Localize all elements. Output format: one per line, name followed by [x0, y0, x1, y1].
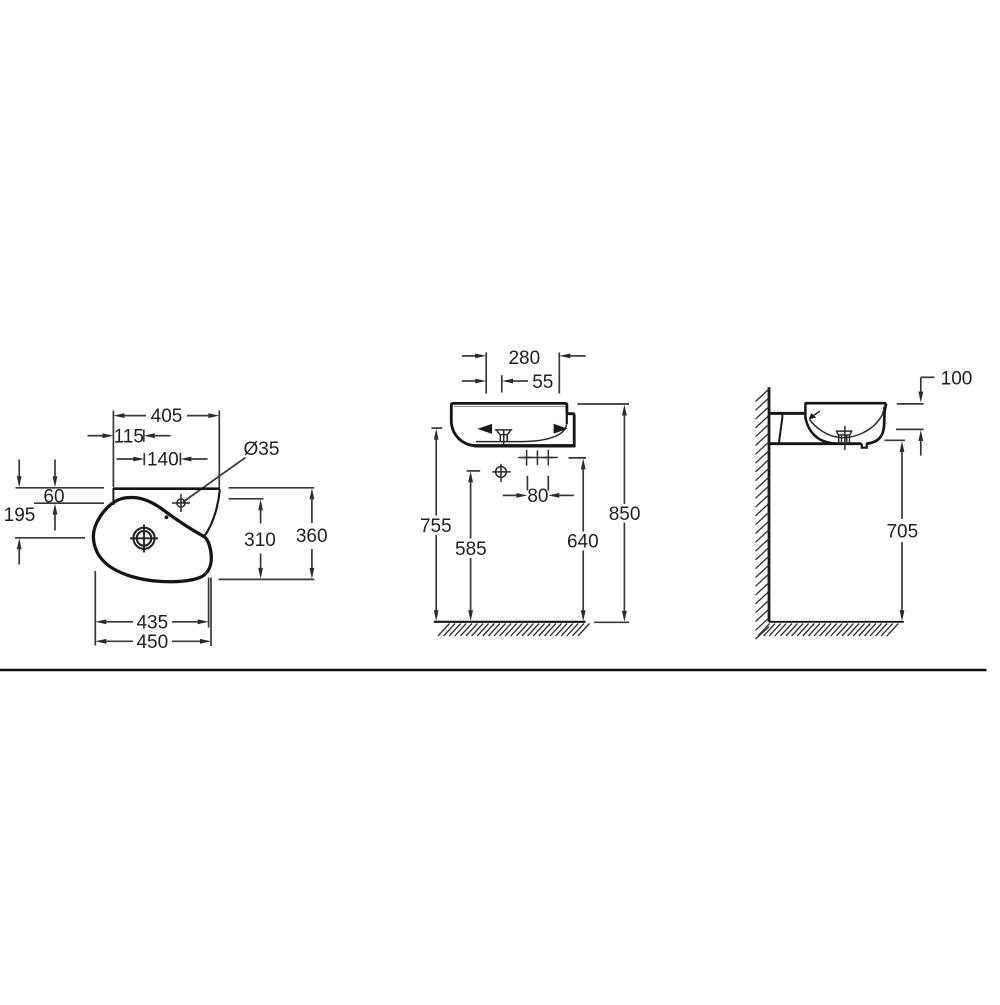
svg-text:Ø35: Ø35: [244, 439, 280, 460]
svg-text:850: 850: [609, 504, 641, 525]
svg-text:755: 755: [420, 516, 452, 537]
svg-text:360: 360: [296, 526, 328, 547]
svg-text:450: 450: [136, 632, 168, 653]
svg-text:280: 280: [508, 348, 540, 369]
svg-text:405: 405: [151, 406, 183, 427]
svg-text:640: 640: [567, 532, 599, 553]
svg-text:435: 435: [136, 612, 168, 633]
svg-text:55: 55: [532, 372, 553, 393]
svg-text:585: 585: [455, 539, 487, 560]
svg-text:80: 80: [527, 486, 548, 507]
svg-text:100: 100: [941, 369, 973, 390]
svg-text:705: 705: [886, 522, 918, 543]
svg-text:115: 115: [114, 426, 144, 447]
svg-text:310: 310: [244, 530, 276, 551]
svg-text:195: 195: [4, 505, 36, 526]
svg-text:140: 140: [147, 450, 179, 471]
svg-text:60: 60: [43, 487, 64, 508]
